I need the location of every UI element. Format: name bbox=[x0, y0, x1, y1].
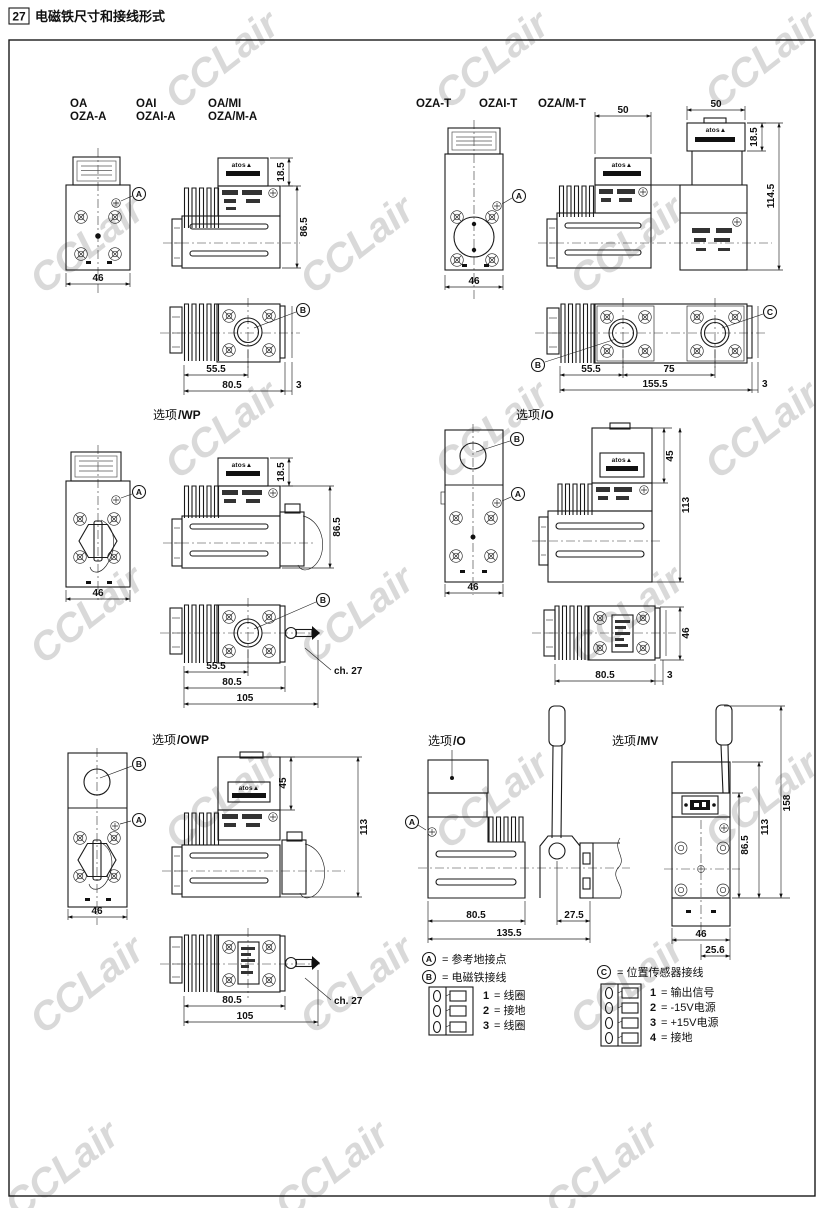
ground-screw-icon bbox=[112, 496, 121, 505]
dim-105-label: 105 bbox=[237, 693, 254, 704]
dim-18-5-label: 18.5 bbox=[276, 462, 287, 482]
pin-number: 1 bbox=[483, 990, 489, 1002]
screw-icon bbox=[223, 344, 236, 357]
dim-75-label: 75 bbox=[663, 364, 675, 375]
pin-number: 2 bbox=[650, 1002, 656, 1014]
heatsink-fins bbox=[185, 486, 219, 518]
pin-function: = 接地 bbox=[494, 1004, 525, 1017]
screw-icon bbox=[74, 513, 87, 526]
screw-icon bbox=[675, 842, 687, 854]
dim-155-5-label: 155.5 bbox=[642, 379, 667, 390]
center-hole bbox=[95, 233, 101, 239]
dim-113-label: 113 bbox=[681, 496, 692, 513]
callout-a-label: A bbox=[136, 189, 142, 199]
screw-icon bbox=[263, 645, 276, 658]
option-prefix: 选项 bbox=[612, 734, 636, 748]
dim-46-label: 46 bbox=[92, 588, 104, 599]
model-label: OZAI-A bbox=[136, 111, 176, 123]
callout-a-label: A bbox=[516, 191, 522, 201]
callout-b-label: B bbox=[320, 595, 326, 605]
pin-function: = 接地 bbox=[661, 1031, 692, 1044]
legend-c-label: C bbox=[601, 967, 607, 977]
callout-b-label: B bbox=[136, 759, 142, 769]
lever-knob bbox=[716, 705, 732, 745]
option-prefix: 选项 bbox=[153, 408, 177, 422]
dim-18-5-label: 18.5 bbox=[276, 162, 287, 182]
screw-icon bbox=[485, 550, 498, 563]
callout-b-label: B bbox=[535, 360, 541, 370]
transducer-housing bbox=[680, 185, 747, 270]
pin-number: 1 bbox=[650, 987, 656, 999]
screw-icon bbox=[486, 211, 499, 224]
dim-113-label: 113 bbox=[359, 818, 370, 835]
screw-icon bbox=[450, 550, 463, 563]
pin-number: 3 bbox=[483, 1020, 489, 1032]
model-labels-left: OA OAI OA/MI OZA-A OZAI-A OZA/M-A bbox=[70, 98, 257, 123]
callout-a-label: A bbox=[515, 489, 521, 499]
dim-ch27-label: ch. 27 bbox=[334, 996, 363, 1007]
dim-3-label: 3 bbox=[762, 379, 768, 390]
heatsink-fins bbox=[558, 484, 592, 515]
watermark-text: CCLair bbox=[292, 186, 424, 303]
drawing-sheet: CCLair CCLair CCLair CCLair CCLair CCLai… bbox=[0, 0, 823, 1208]
legend-c-text: = 位置传感器接线 bbox=[617, 965, 703, 979]
watermark-text: CCLair bbox=[697, 741, 823, 858]
screw-icon bbox=[223, 941, 236, 954]
callout-a-label: A bbox=[136, 487, 142, 497]
dim-3-label: 3 bbox=[667, 670, 673, 681]
watermark-text: CCLair bbox=[427, 371, 559, 488]
screw-icon bbox=[108, 551, 121, 564]
pin-number: 3 bbox=[650, 1017, 656, 1029]
brand-logo: atos▲ bbox=[612, 162, 633, 169]
heatsink-fins bbox=[561, 304, 595, 363]
watermark-text: CCLair bbox=[697, 371, 823, 488]
dim-27-5-label: 27.5 bbox=[564, 910, 584, 921]
pin-number: 2 bbox=[483, 1005, 489, 1017]
page-number: 27 bbox=[12, 10, 26, 24]
model-label: OZA/M-A bbox=[208, 111, 257, 123]
screw-icon bbox=[639, 188, 648, 197]
model-label: OZA/M-T bbox=[538, 98, 586, 110]
terminal-block-3pin-icon bbox=[429, 987, 473, 1035]
screw-icon bbox=[717, 884, 729, 896]
option-o-label: 选项 /O bbox=[516, 408, 554, 422]
screw-icon bbox=[263, 344, 276, 357]
dim-46-label: 46 bbox=[468, 276, 480, 287]
watermark-text: CCLair bbox=[0, 1111, 129, 1208]
screw-icon bbox=[675, 884, 687, 896]
model-label: OZA-T bbox=[416, 98, 451, 110]
lever-housing bbox=[672, 762, 730, 793]
screw-icon bbox=[108, 832, 121, 845]
mv-front-view: 选项 /MV 86.5 113 158 46 25.6 bbox=[612, 705, 793, 960]
ozat-plan-view: B C 55.5 75 155.5 3 bbox=[532, 298, 777, 393]
dim-55-5-label: 55.5 bbox=[206, 364, 226, 375]
dim-18-5-label: 18.5 bbox=[749, 127, 760, 147]
callout-c-label: C bbox=[767, 307, 773, 317]
pin-function: = 线圈 bbox=[494, 1018, 525, 1032]
dim-80-5-label: 80.5 bbox=[222, 995, 242, 1006]
dim-3-label: 3 bbox=[296, 380, 302, 391]
owp-front-view: B A 46 bbox=[68, 748, 146, 925]
connector-block bbox=[592, 428, 652, 483]
dim-80-5-label: 80.5 bbox=[466, 910, 486, 921]
page-title: 电磁铁尺寸和接线形式 bbox=[35, 9, 165, 24]
screw-icon bbox=[729, 345, 742, 358]
oa-plan-view: B 55.5 80.5 3 bbox=[160, 298, 310, 395]
screw-icon bbox=[263, 941, 276, 954]
screw-icon bbox=[485, 512, 498, 525]
screw-icon bbox=[223, 974, 236, 987]
dim-114-5-label: 114.5 bbox=[766, 183, 777, 208]
dim-135-5-label: 135.5 bbox=[496, 928, 521, 939]
dim-113-label: 113 bbox=[760, 818, 771, 835]
cable-gland bbox=[280, 512, 304, 566]
legend-ab: A = 参考地接点 B = 电磁铁接线 1 = 线圈 2 = 接地 3 = 线圈 bbox=[423, 952, 526, 1035]
brand-logo: atos▲ bbox=[232, 162, 253, 169]
model-label: OZA-A bbox=[70, 111, 106, 123]
heatsink-fins bbox=[185, 188, 219, 228]
screw-icon bbox=[691, 345, 704, 358]
dim-86-5-label: 86.5 bbox=[740, 835, 751, 855]
heatsink-fins bbox=[185, 935, 219, 992]
dim-25-6-label: 25.6 bbox=[705, 945, 725, 956]
page-header: 27 电磁铁尺寸和接线形式 bbox=[9, 8, 165, 24]
ozat-front-view: A 46 bbox=[445, 120, 526, 300]
option-suffix: /MV bbox=[637, 734, 658, 748]
model-label: OZAI-T bbox=[479, 98, 517, 110]
screw-icon bbox=[269, 813, 278, 822]
ground-screw-icon bbox=[493, 499, 502, 508]
pin-function: = -15V电源 bbox=[661, 1000, 716, 1014]
screw-icon bbox=[640, 486, 649, 495]
watermark-text: CCLair bbox=[22, 186, 154, 303]
screw-icon bbox=[601, 311, 614, 324]
screw-icon bbox=[74, 551, 87, 564]
watermark-text: CCLair bbox=[22, 926, 154, 1043]
pin-function: = 输出信号 bbox=[661, 985, 714, 999]
dim-46-label: 46 bbox=[92, 273, 104, 284]
dim-46-label: 46 bbox=[681, 627, 692, 639]
legend-a-label: A bbox=[426, 954, 432, 964]
dim-105-label: 105 bbox=[237, 1011, 254, 1022]
callout-b-label: B bbox=[514, 434, 520, 444]
dim-86-5-label: 86.5 bbox=[332, 517, 343, 537]
pin-function: = 线圈 bbox=[494, 988, 525, 1002]
legend-b-text: = 电磁铁接线 bbox=[442, 970, 506, 984]
option-owp-label: 选项 /OWP bbox=[152, 733, 209, 747]
option-prefix: 选项 bbox=[428, 734, 452, 748]
model-label: OA bbox=[70, 98, 87, 110]
dim-46-label: 46 bbox=[91, 906, 103, 917]
override-pin bbox=[286, 958, 297, 969]
dim-46-label: 46 bbox=[695, 929, 707, 940]
dim-50-label: 50 bbox=[710, 99, 722, 110]
brand-logo: atos▲ bbox=[612, 457, 633, 464]
legend-a-text: = 参考地接点 bbox=[442, 952, 506, 966]
screw-icon bbox=[269, 489, 278, 498]
o-plan-view: 46 80.5 3 bbox=[532, 606, 692, 685]
watermark-text: CCLair bbox=[267, 1111, 399, 1208]
dim-45-label: 45 bbox=[278, 777, 289, 789]
dim-45-label: 45 bbox=[665, 450, 676, 462]
option-wp-label: 选项 /WP bbox=[153, 408, 201, 422]
screw-icon bbox=[74, 832, 87, 845]
dim-46-label: 46 bbox=[467, 582, 479, 593]
dim-50-label: 50 bbox=[617, 105, 629, 116]
model-labels-right: OZA-T OZAI-T OZA/M-T bbox=[416, 98, 586, 110]
brand-logo: atos▲ bbox=[239, 785, 260, 792]
dim-ch27-label: ch. 27 bbox=[334, 666, 363, 677]
screw-icon bbox=[450, 512, 463, 525]
screw-icon bbox=[691, 311, 704, 324]
screw-icon bbox=[733, 218, 742, 227]
screw-icon bbox=[601, 345, 614, 358]
watermark-text: CCLair bbox=[22, 556, 154, 673]
screw-icon bbox=[451, 254, 464, 267]
screw-icon bbox=[263, 611, 276, 624]
dim-158-label: 158 bbox=[782, 794, 793, 811]
callout-a-label: A bbox=[409, 817, 415, 827]
dim-80-5-label: 80.5 bbox=[222, 380, 242, 391]
model-label: OAI bbox=[136, 98, 156, 110]
catalog-page: CCLair CCLair CCLair CCLair CCLair CCLai… bbox=[0, 0, 823, 1208]
lever-shaft bbox=[552, 746, 562, 838]
watermark-text: CCLair bbox=[292, 556, 424, 673]
screw-icon bbox=[223, 645, 236, 658]
heatsink-fins bbox=[560, 186, 594, 217]
screw-icon bbox=[729, 311, 742, 324]
oa-side-view: atos▲ 18.5 86.5 bbox=[163, 158, 310, 268]
dim-86-5-label: 86.5 bbox=[299, 217, 310, 237]
ground-screw-icon bbox=[493, 202, 502, 211]
dim-55-5-label: 55.5 bbox=[581, 364, 601, 375]
ground-screw-icon bbox=[111, 822, 120, 831]
pin-function: = +15V电源 bbox=[661, 1015, 718, 1029]
o-side-view: atos▲ 45 113 bbox=[532, 423, 692, 582]
screw-icon bbox=[639, 311, 652, 324]
screw-icon bbox=[639, 345, 652, 358]
dim-80-5-label: 80.5 bbox=[595, 670, 615, 681]
screw-icon bbox=[223, 310, 236, 323]
brand-logo: atos▲ bbox=[232, 462, 253, 469]
screw-icon bbox=[223, 611, 236, 624]
callout-b-label: B bbox=[300, 305, 306, 315]
lever-pivot bbox=[549, 843, 565, 859]
pin-number: 4 bbox=[650, 1032, 657, 1044]
lever-shaft bbox=[721, 745, 729, 793]
option-prefix: 选项 bbox=[152, 733, 176, 747]
option-suffix: /WP bbox=[178, 408, 201, 422]
watermark-text: CCLair bbox=[537, 1111, 669, 1208]
dim-80-5-label: 80.5 bbox=[222, 677, 242, 688]
screw-icon bbox=[451, 211, 464, 224]
lever-knob bbox=[549, 706, 565, 746]
option-prefix: 选项 bbox=[516, 408, 540, 422]
option-suffix: /O bbox=[541, 408, 554, 422]
heatsink-fins bbox=[185, 304, 219, 361]
option-suffix: /OWP bbox=[177, 733, 209, 747]
screw-icon bbox=[108, 513, 121, 526]
legend-b-label: B bbox=[426, 972, 432, 982]
callout-a-label: A bbox=[136, 815, 142, 825]
screw-icon bbox=[263, 974, 276, 987]
nameplate bbox=[71, 452, 121, 481]
cable-gland bbox=[282, 840, 306, 894]
screw-icon bbox=[637, 642, 650, 655]
heatsink-fins bbox=[185, 605, 219, 663]
brand-logo: atos▲ bbox=[706, 127, 727, 134]
model-label: OA/MI bbox=[208, 98, 241, 110]
option-suffix: /O bbox=[453, 734, 466, 748]
dim-55-5-label: 55.5 bbox=[206, 661, 226, 672]
screw-icon bbox=[269, 189, 278, 198]
